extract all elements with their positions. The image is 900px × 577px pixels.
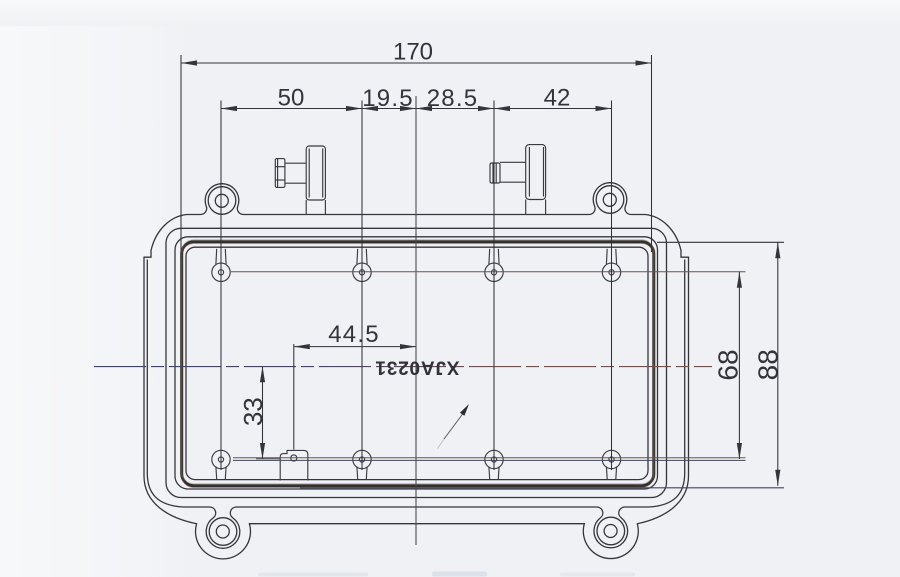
svg-text:88: 88	[752, 349, 783, 380]
svg-text:50: 50	[278, 85, 305, 112]
svg-text:170: 170	[393, 39, 433, 66]
svg-text:44.5: 44.5	[328, 321, 380, 348]
svg-text:33: 33	[238, 397, 268, 426]
svg-text:19.5: 19.5	[362, 85, 414, 112]
svg-text:42: 42	[544, 85, 571, 112]
svg-text:XJA0231: XJA0231	[375, 356, 460, 377]
svg-text:68: 68	[713, 349, 744, 380]
svg-text:28.5: 28.5	[427, 85, 479, 112]
